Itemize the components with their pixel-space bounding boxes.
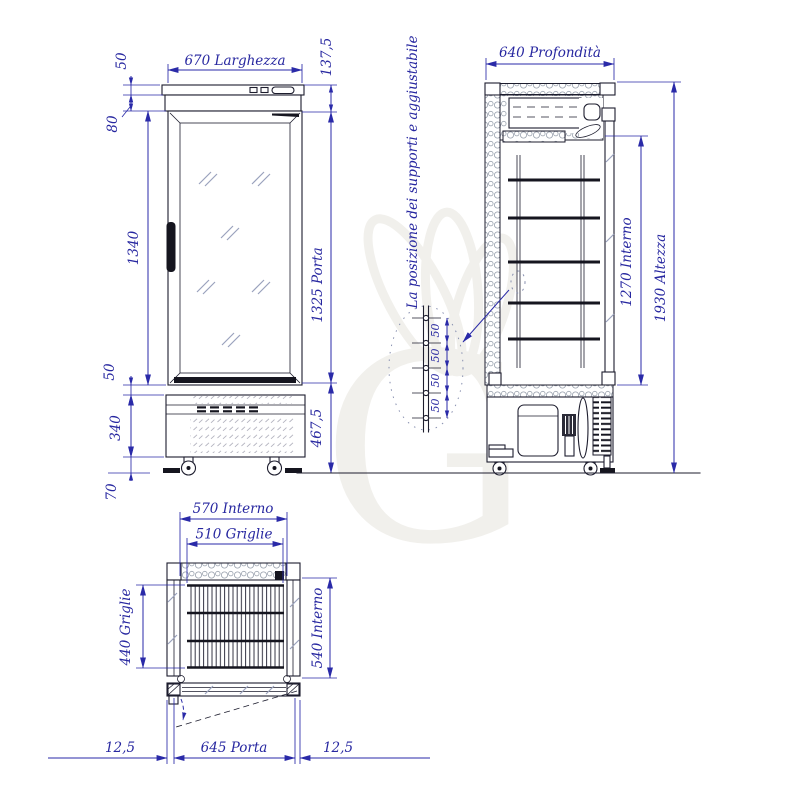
caster-wheels-front <box>163 457 302 475</box>
technical-drawing-page: G <box>0 0 800 800</box>
wire-shelf-plan <box>187 585 284 668</box>
door-handle <box>167 222 176 272</box>
fan-blade-icon <box>578 398 588 458</box>
detail-spacing-label: 50 <box>429 399 442 413</box>
dim-shelf-width-label: 510 Griglie <box>196 527 273 543</box>
dim-door-width-label: 645 Porta <box>201 740 268 756</box>
glass-door-side <box>602 108 615 385</box>
dim-glass-height-label: 1340 <box>126 230 142 265</box>
drawing-canvas: G <box>0 0 800 800</box>
control-button-icon <box>250 88 257 93</box>
dim-header-total-label: 137,5 <box>319 38 335 77</box>
dim-right-gap-label: 12,5 <box>323 740 353 756</box>
compressor <box>518 405 558 456</box>
detail-spacing-label: 50 <box>429 324 442 338</box>
control-display-icon <box>272 87 294 94</box>
dim-base-total-label: 467,5 <box>309 409 325 449</box>
front-view: 670 Larghezza 50 80 137,5 1340 1325 Port… <box>102 38 337 501</box>
detail-spacing-label: 50 <box>429 349 442 363</box>
dim-canopy-label: 50 <box>114 52 130 70</box>
dim-floor-clearance-label: 70 <box>104 483 120 501</box>
glass-door-front <box>168 111 302 385</box>
dim-interior-height-label: 1270 Interno <box>619 217 635 306</box>
dim-depth-label: 640 Profondità <box>499 45 601 61</box>
dim-door-height-label: 1325 Porta <box>310 247 326 322</box>
dim-base-height-label: 340 <box>108 415 124 441</box>
dim-interior-depth-label: 540 Interno <box>310 588 326 669</box>
dim-shelf-depth-label: 440 Griglie <box>118 589 134 667</box>
detail-spacing-label: 50 <box>429 374 442 388</box>
dim-header-band-label: 80 <box>105 115 121 133</box>
dim-total-height-label: 1930 Altezza <box>653 234 669 322</box>
back-wall-insulation <box>485 95 500 385</box>
dim-width-label: 670 Larghezza <box>184 53 285 69</box>
fan-top-icon <box>584 104 600 120</box>
door-swing-arrow <box>181 699 184 720</box>
condenser-coil <box>593 397 611 455</box>
dim-sill-label: 50 <box>102 363 118 381</box>
control-button-icon <box>261 88 268 93</box>
dim-left-gap-label: 12,5 <box>105 740 135 756</box>
door-plan <box>167 683 300 727</box>
detail-note: La posizione dei supporti e aggiustabile <box>405 36 421 310</box>
dim-interior-width-label: 570 Interno <box>193 501 274 517</box>
evaporator <box>509 98 581 128</box>
